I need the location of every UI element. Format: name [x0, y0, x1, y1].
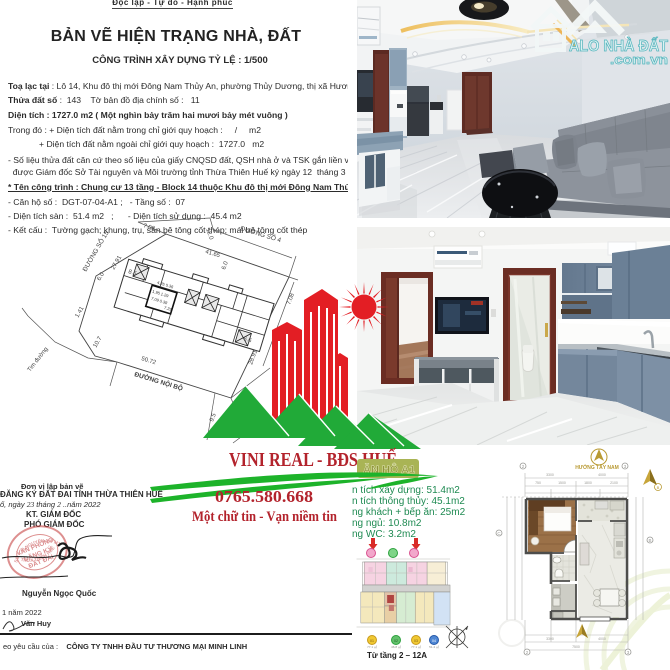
svg-text:41.65: 41.65 [204, 249, 221, 259]
svg-text:12.0: 12.0 [204, 228, 214, 242]
svg-text:7.08: 7.08 [142, 223, 156, 232]
svg-text:50.72: 50.72 [140, 356, 157, 366]
svg-text:6.0: 6.0 [221, 260, 230, 271]
svg-text:77.1 ㎡: 77.1 ㎡ [367, 644, 377, 649]
svg-text:04: 04 [432, 639, 436, 643]
svg-text:B: B [657, 485, 660, 490]
svg-text:ĐƯỜNG SỐ 4: ĐƯỜNG SỐ 4 [239, 222, 283, 244]
svg-text:B: B [648, 538, 651, 543]
svg-text:77.1 ㎡: 77.1 ㎡ [411, 644, 421, 649]
svg-text:02: 02 [394, 639, 398, 643]
svg-text:.com.vn: .com.vn [610, 52, 668, 67]
svg-text:1500: 1500 [558, 481, 566, 485]
svg-text:03: 03 [414, 639, 418, 643]
svg-text:01: 01 [370, 639, 374, 643]
svg-text:1800: 1800 [584, 481, 592, 485]
svg-text:3300: 3300 [546, 637, 554, 641]
svg-text:9.5: 9.5 [209, 412, 218, 423]
svg-text:46.8 ㎡: 46.8 ㎡ [391, 644, 401, 649]
svg-text:2100: 2100 [610, 481, 618, 485]
svg-text:7.08: 7.08 [286, 292, 296, 306]
svg-text:10.7: 10.7 [93, 335, 104, 349]
svg-text:28.91: 28.91 [248, 349, 259, 366]
svg-text:3300: 3300 [546, 473, 554, 477]
svg-text:ĐƯỜNG SỐ 15: ĐƯỜNG SỐ 15 [79, 228, 111, 273]
svg-text:1.41: 1.41 [75, 305, 86, 319]
svg-text:4000: 4000 [598, 473, 606, 477]
svg-text:27.91: 27.91 [111, 254, 124, 271]
svg-text:Tim đường: Tim đường [27, 346, 50, 373]
svg-text:750: 750 [535, 481, 541, 485]
svg-text:51.4 ㎡: 51.4 ㎡ [429, 644, 439, 649]
svg-text:7500: 7500 [572, 645, 580, 649]
svg-text:4000: 4000 [598, 637, 606, 641]
svg-text:HƯỚNG TÂY NAM: HƯỚNG TÂY NAM [575, 463, 619, 471]
svg-text:6.0: 6.0 [97, 271, 107, 282]
